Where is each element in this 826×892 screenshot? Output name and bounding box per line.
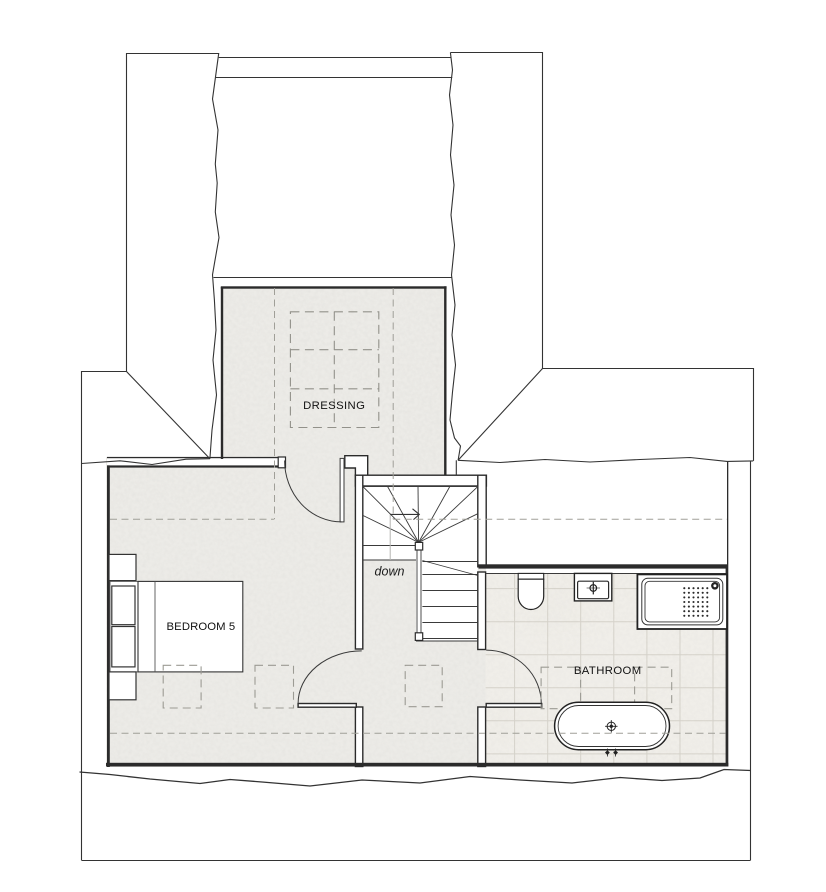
svg-text:DRESSING: DRESSING xyxy=(303,400,365,412)
svg-text:BATHROOM: BATHROOM xyxy=(574,665,642,677)
svg-text:down: down xyxy=(375,565,405,579)
svg-text:BEDROOM 5: BEDROOM 5 xyxy=(167,621,236,633)
